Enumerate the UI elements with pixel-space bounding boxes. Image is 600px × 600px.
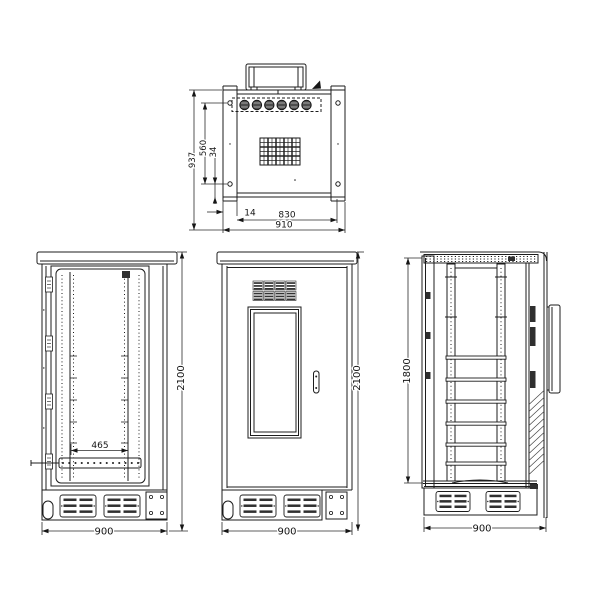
front-open-dimension-lines — [42, 252, 188, 535]
dim-top-width-inner: 830 — [278, 211, 295, 221]
roof-cap — [37, 252, 177, 264]
dim-front-closed-height: 2100 — [352, 365, 363, 390]
side-mounted-box — [547, 305, 560, 393]
datum-triangle-marker — [312, 81, 321, 90]
latch-block — [530, 327, 536, 346]
latch-block — [530, 306, 536, 322]
fan-grille — [260, 138, 300, 165]
cable-entry-box — [246, 64, 306, 90]
plinth-handle-notch — [43, 501, 53, 519]
dim-rail-spacing: 465 — [91, 441, 108, 451]
door-handle — [314, 371, 320, 393]
side-section-view: 1800 900 — [402, 252, 560, 535]
door-latch-block — [122, 271, 130, 278]
roof-cap — [217, 252, 357, 264]
dim-front-closed-width: 900 — [277, 527, 296, 538]
wall-hatch — [530, 391, 544, 474]
front-door-profile — [422, 256, 434, 488]
cabinet-engineering-drawing: 937 560 34 14 830 910 — [0, 0, 600, 600]
plinth-handle-notch — [223, 501, 233, 519]
plinth — [42, 490, 167, 520]
front-closed-view: 900 2100 — [217, 252, 364, 538]
rack-frame — [445, 264, 507, 481]
dim-front-open-width: 900 — [94, 527, 113, 538]
dim-top-side-flange: 14 — [244, 209, 256, 219]
dim-front-open-height: 2100 — [176, 365, 187, 390]
cable-gland-row — [240, 100, 311, 109]
latch-block — [530, 371, 536, 388]
dim-side-width: 900 — [472, 524, 491, 535]
roof — [420, 252, 547, 263]
anchor-bracket — [146, 492, 167, 519]
body-outline — [42, 264, 167, 490]
dim-top-rear-offset: 34 — [209, 147, 219, 158]
anchor-bracket — [326, 492, 347, 519]
top-view: 937 560 34 14 830 910 — [188, 64, 345, 233]
dim-top-depth-overall: 937 — [188, 152, 198, 168]
plinth — [424, 484, 538, 515]
door-opening — [51, 266, 149, 486]
door-vent-grille — [253, 281, 296, 301]
dim-top-width-overall: 910 — [275, 221, 292, 231]
base-frame — [423, 480, 537, 487]
door-window-panel — [248, 307, 301, 438]
rear-wall — [526, 252, 547, 518]
dim-side-frame-height: 1800 — [402, 358, 413, 383]
shelf-position-ticks — [70, 356, 128, 443]
gland-strip-holes — [62, 462, 139, 464]
dim-top-depth-inner: 560 — [199, 140, 209, 156]
plinth — [222, 490, 347, 520]
